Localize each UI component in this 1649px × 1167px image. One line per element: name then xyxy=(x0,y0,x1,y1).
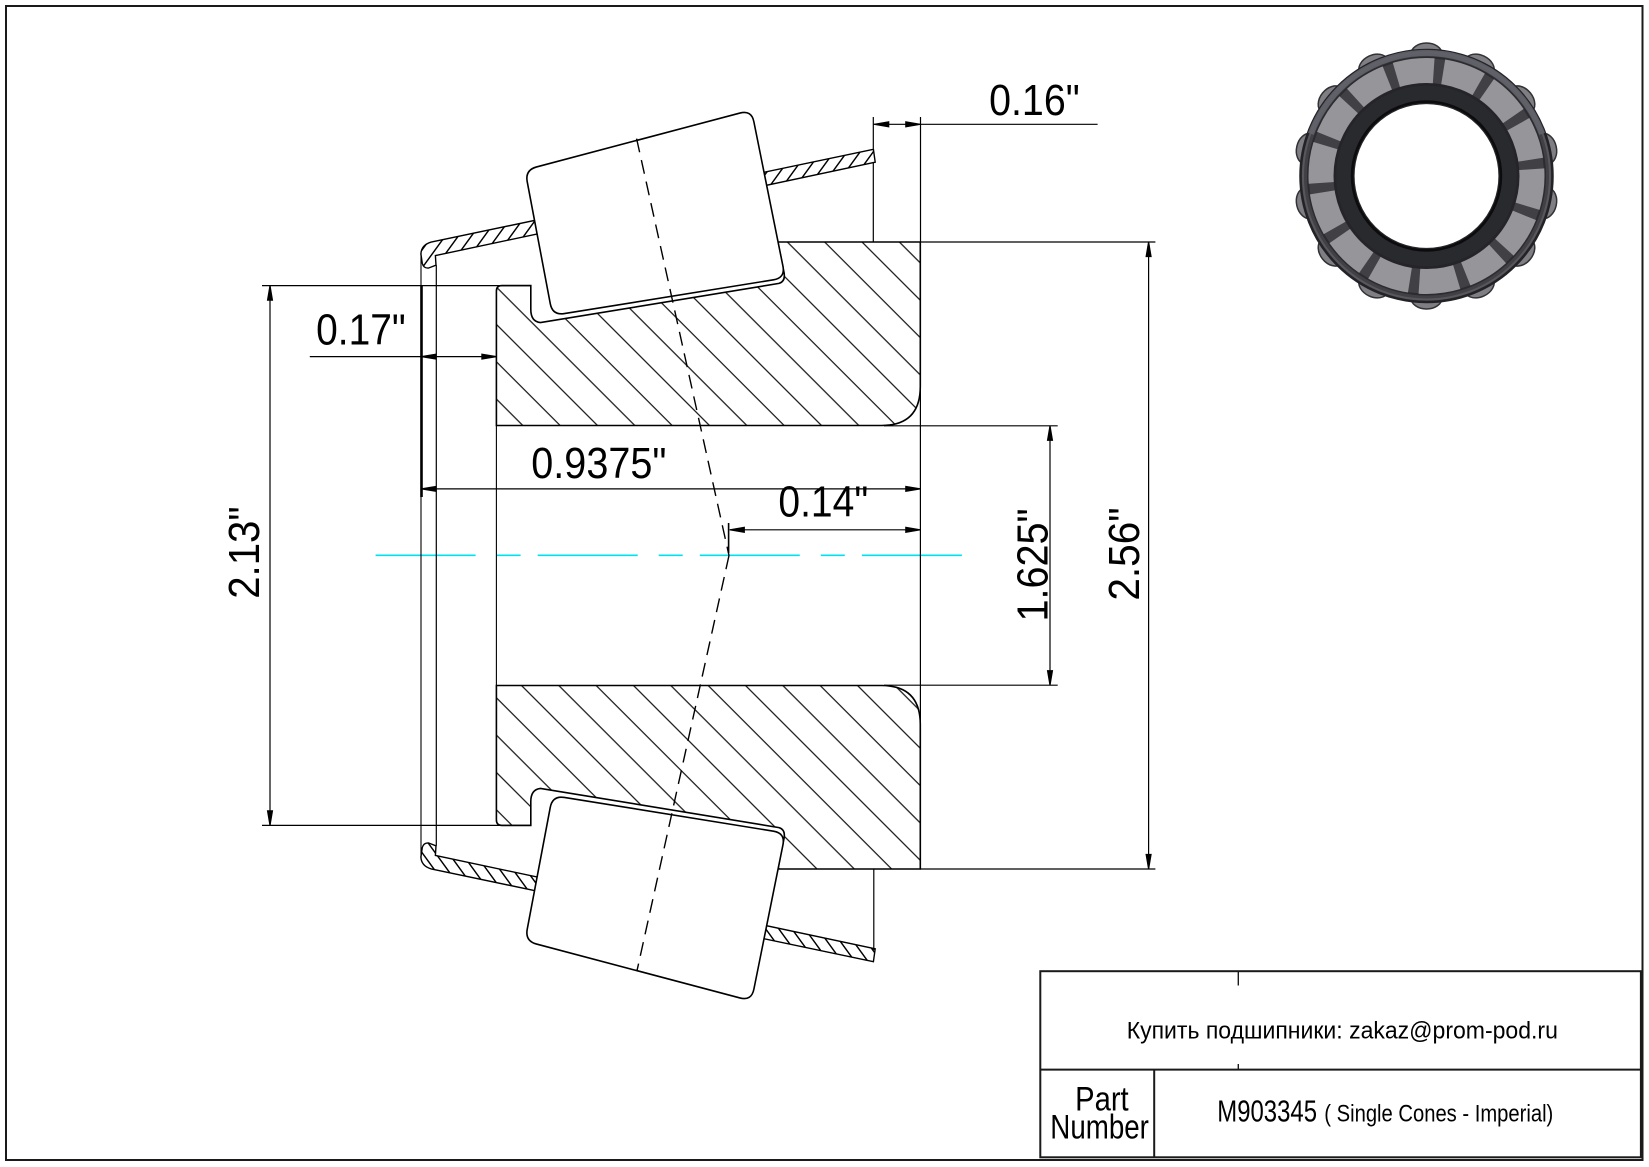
svg-text:Купить подшипники: zakaz@prom-: Купить подшипники: zakaz@prom-pod.ru xyxy=(1127,1017,1558,1044)
svg-text:0.14": 0.14" xyxy=(778,477,868,526)
svg-text:M903345: M903345 xyxy=(1217,1093,1317,1128)
svg-text:( Single Cones - Imperial): ( Single Cones - Imperial) xyxy=(1324,1100,1553,1127)
svg-text:2.56": 2.56" xyxy=(1100,507,1149,600)
svg-text:1.625": 1.625" xyxy=(1008,508,1057,621)
svg-text:2.13": 2.13" xyxy=(220,506,269,598)
svg-text:0.9375": 0.9375" xyxy=(531,439,666,488)
svg-text:0.16": 0.16" xyxy=(989,76,1080,125)
svg-text:0.17": 0.17" xyxy=(316,306,406,355)
svg-text:Number: Number xyxy=(1050,1108,1149,1146)
